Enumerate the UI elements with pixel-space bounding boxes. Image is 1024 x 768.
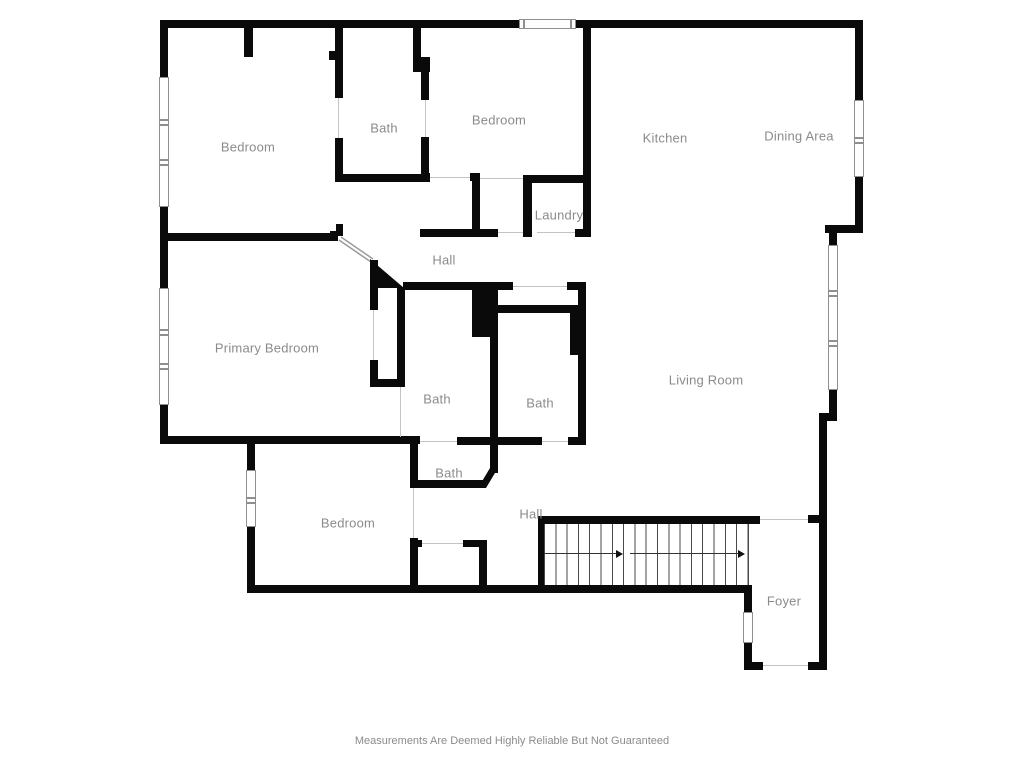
room-label-kitchen: Kitchen	[643, 131, 688, 146]
room-label-bath-top: Bath	[370, 121, 398, 136]
room-label-hall-lower: Hall	[519, 507, 542, 522]
room-label-hall-upper: Hall	[432, 253, 455, 268]
room-label-bedroom-top-center: Bedroom	[472, 113, 526, 128]
floor-plan: Bedroom Bath Bedroom Kitchen Dining Area…	[0, 0, 1024, 768]
room-label-bath-lower: Bath	[435, 466, 463, 481]
room-label-dining-area: Dining Area	[764, 129, 833, 144]
disclaimer-text: Measurements Are Deemed Highly Reliable …	[355, 735, 669, 747]
room-label-bath-center-right: Bath	[526, 396, 554, 411]
room-label-primary-bedroom: Primary Bedroom	[215, 341, 319, 356]
room-label-living-room: Living Room	[669, 373, 743, 388]
room-label-laundry: Laundry	[535, 208, 583, 223]
room-label-bedroom-lower: Bedroom	[321, 516, 375, 531]
room-label-bedroom-top-left: Bedroom	[221, 140, 275, 155]
room-label-bath-center-left: Bath	[423, 392, 451, 407]
room-label-foyer: Foyer	[767, 594, 801, 609]
